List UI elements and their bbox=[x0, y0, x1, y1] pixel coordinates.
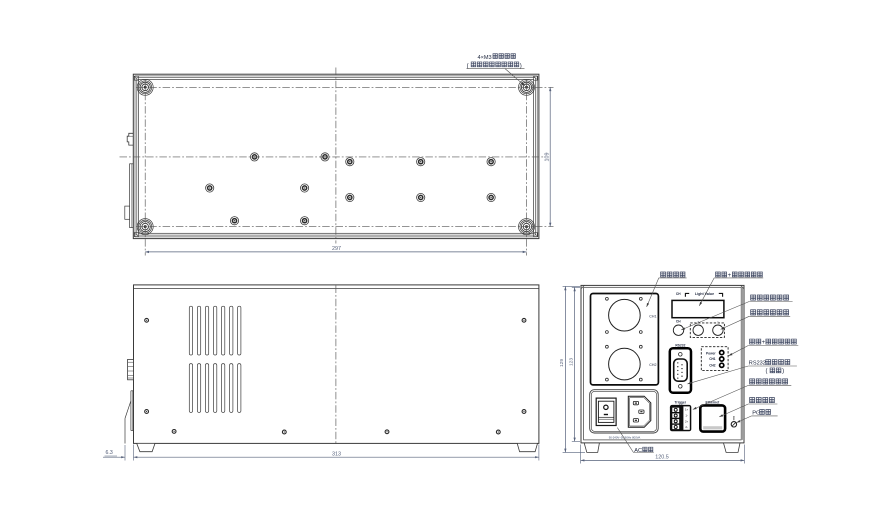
svg-text:CH2: CH2 bbox=[709, 363, 716, 367]
svg-text:129: 129 bbox=[559, 359, 565, 367]
svg-text:RS232: RS232 bbox=[749, 360, 766, 366]
svg-text:CH2: CH2 bbox=[649, 363, 656, 367]
svg-text:CH1: CH1 bbox=[709, 357, 716, 361]
svg-text:123: 123 bbox=[568, 358, 574, 366]
svg-text:2-: 2- bbox=[685, 425, 688, 429]
svg-text:−: − bbox=[717, 319, 719, 323]
svg-text:): ) bbox=[782, 368, 784, 374]
svg-text:109: 109 bbox=[544, 153, 550, 162]
svg-text:CH: CH bbox=[676, 320, 681, 324]
svg-text:313: 313 bbox=[332, 451, 341, 457]
svg-text:RS232: RS232 bbox=[675, 343, 685, 347]
svg-text:1-: 1- bbox=[685, 414, 688, 418]
svg-text:1+: 1+ bbox=[685, 408, 689, 412]
svg-text:CH: CH bbox=[676, 292, 681, 296]
svg-text:120.5: 120.5 bbox=[655, 455, 669, 461]
svg-text:Trigger: Trigger bbox=[675, 400, 687, 404]
svg-text:2+: 2+ bbox=[685, 419, 689, 423]
svg-text:297: 297 bbox=[332, 246, 341, 252]
svg-text:6.3: 6.3 bbox=[106, 450, 113, 456]
svg-text:AC: AC bbox=[634, 448, 642, 454]
svg-text:4×M3: 4×M3 bbox=[478, 55, 492, 61]
svg-text:Power: Power bbox=[706, 351, 716, 355]
svg-text:(: ( bbox=[766, 368, 768, 374]
svg-text:CH1: CH1 bbox=[649, 314, 656, 318]
